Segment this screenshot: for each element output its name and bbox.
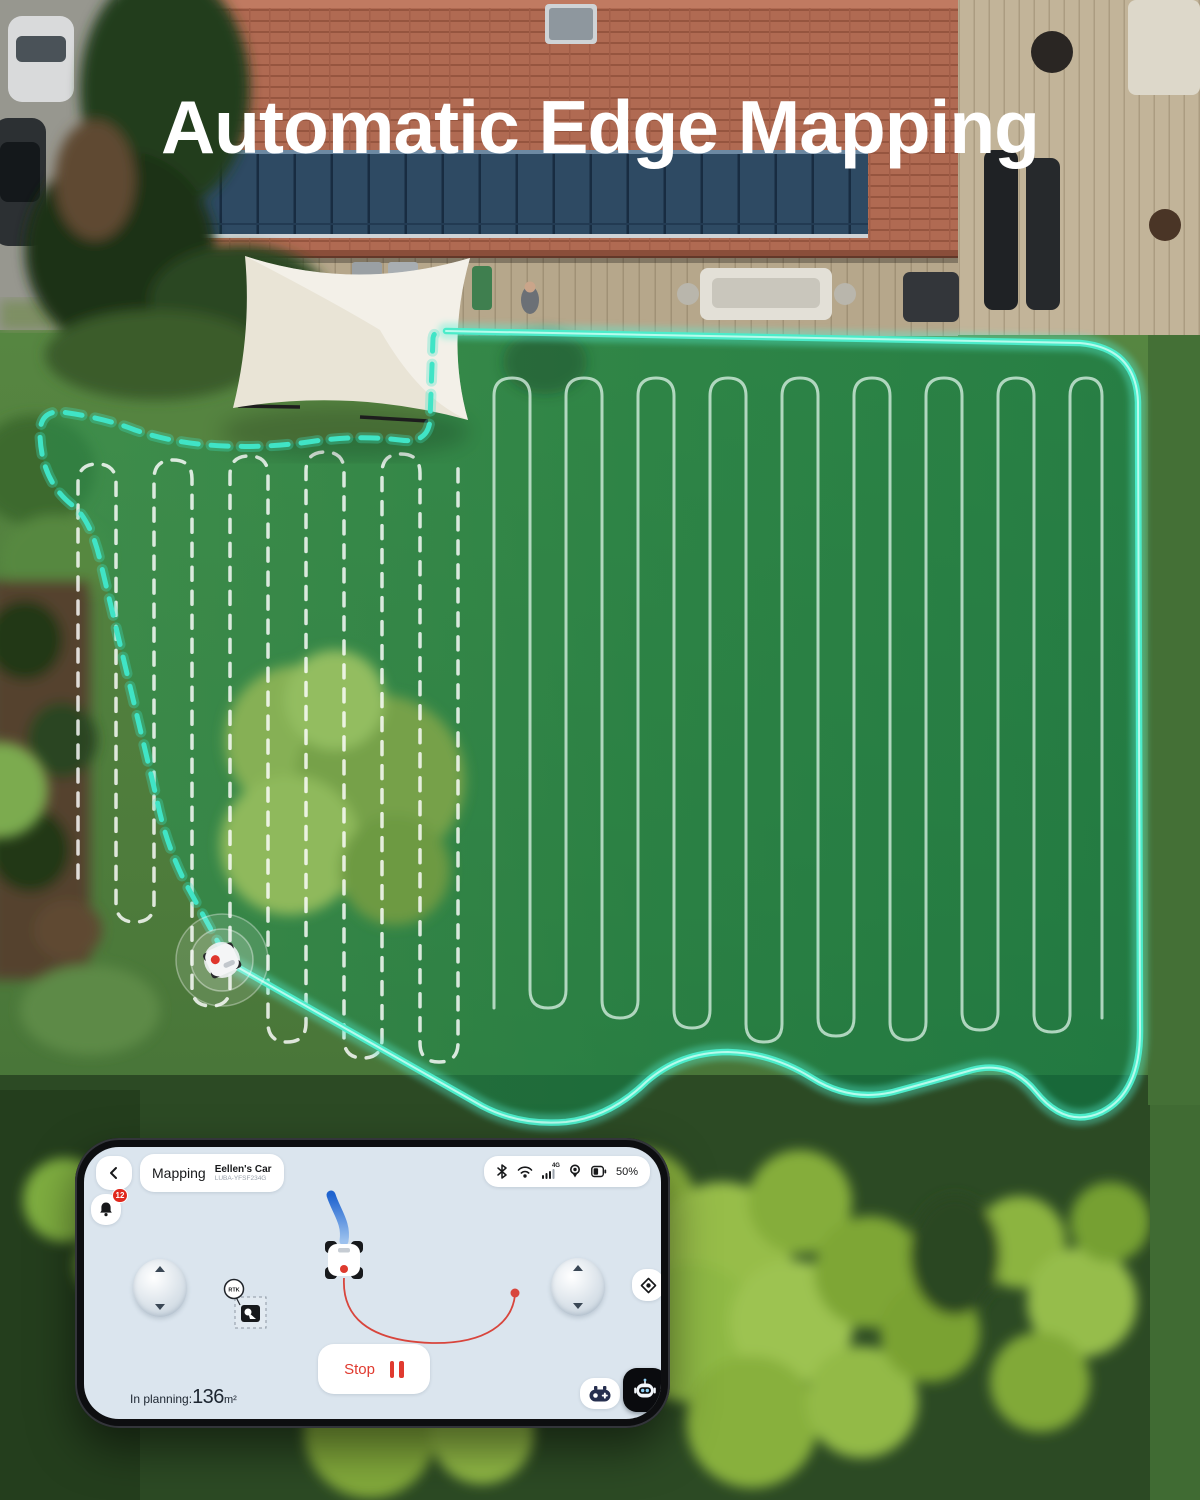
battery-icon	[591, 1165, 607, 1178]
left-joystick[interactable]	[133, 1259, 187, 1317]
outer-lawn-right	[1148, 335, 1200, 1105]
gamepad-icon	[588, 1385, 612, 1403]
grill	[903, 272, 959, 322]
battery-percent: 50%	[616, 1166, 638, 1178]
planning-readout: In planning:136m²	[130, 1386, 237, 1409]
lounger	[984, 150, 1018, 310]
screen-label: Mapping	[152, 1165, 206, 1181]
rtk-station-marker[interactable]: RTK	[225, 1280, 267, 1329]
planning-unit: m²	[224, 1394, 237, 1406]
deck-table-set	[677, 268, 856, 320]
notifications-button[interactable]: 12	[91, 1194, 121, 1225]
gps-location-icon	[568, 1164, 582, 1179]
manual-control-button[interactable]	[580, 1378, 620, 1409]
stop-label: Stop	[344, 1361, 375, 1378]
bluetooth-icon	[496, 1164, 508, 1179]
back-button[interactable]	[96, 1156, 132, 1190]
planning-value: 136	[192, 1386, 224, 1409]
fire-pit	[1031, 31, 1073, 73]
rtk-label: RTK	[228, 1288, 239, 1294]
device-name: Eellen's Car	[215, 1164, 272, 1176]
robot-mode-button[interactable]	[623, 1368, 661, 1412]
phone-mockup: RTK Mapping Eellen's Car LUBA-YFSF234G	[75, 1138, 670, 1428]
wifi-icon	[517, 1165, 533, 1178]
status-pill: 4G 50%	[484, 1156, 650, 1187]
robot-mower	[176, 914, 268, 1006]
lounger	[1026, 158, 1060, 310]
traveled-path-blue	[331, 1195, 345, 1241]
joystick-up-arrow	[155, 1266, 165, 1272]
planter	[1149, 209, 1181, 241]
chevron-left-icon	[107, 1166, 121, 1180]
robot-face-icon	[632, 1378, 658, 1402]
deck-box	[472, 266, 492, 310]
page-title: Automatic Edge Mapping	[0, 84, 1200, 170]
joystick-down-arrow	[573, 1303, 583, 1309]
bell-icon	[98, 1201, 114, 1218]
joystick-up-arrow	[573, 1265, 583, 1271]
right-joystick[interactable]	[551, 1258, 605, 1316]
path-endpoint-dot	[511, 1289, 520, 1298]
patio-canopy	[1128, 0, 1200, 95]
locate-button[interactable]	[632, 1269, 661, 1301]
cellular-4g-icon: 4G	[542, 1164, 559, 1179]
locate-target-icon	[640, 1277, 657, 1294]
planned-edge-path-red	[344, 1278, 515, 1343]
marketing-image: Automatic Edge Mapping	[0, 0, 1200, 1500]
header-title-pill[interactable]: Mapping Eellen's Car LUBA-YFSF234G	[140, 1154, 284, 1192]
robot-map-marker[interactable]	[325, 1241, 363, 1279]
app-screen: RTK Mapping Eellen's Car LUBA-YFSF234G	[84, 1147, 661, 1419]
planning-label: In planning:	[130, 1392, 192, 1406]
device-model: LUBA-YFSF234G	[215, 1175, 272, 1182]
stop-button[interactable]: Stop	[318, 1344, 430, 1394]
pause-icon	[390, 1361, 404, 1378]
notification-badge: 12	[112, 1188, 128, 1203]
joystick-down-arrow	[155, 1304, 165, 1310]
